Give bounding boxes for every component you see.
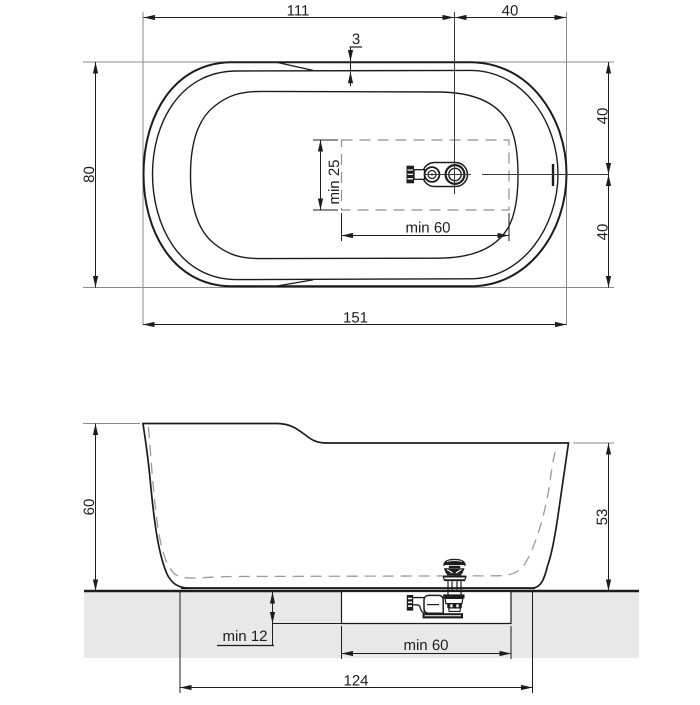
svg-text:40: 40	[595, 224, 612, 241]
svg-text:111: 111	[287, 2, 310, 19]
svg-text:min 12: min 12	[222, 628, 267, 645]
svg-text:40: 40	[595, 108, 612, 125]
svg-text:40: 40	[502, 2, 519, 19]
svg-text:3: 3	[352, 31, 360, 48]
svg-text:124: 124	[343, 672, 368, 689]
svg-text:min 60: min 60	[403, 637, 448, 654]
svg-text:151: 151	[343, 309, 368, 326]
svg-text:min 25: min 25	[326, 159, 343, 204]
svg-text:53: 53	[594, 509, 611, 526]
svg-text:min 60: min 60	[405, 219, 450, 236]
svg-text:80: 80	[81, 166, 98, 183]
svg-text:60: 60	[81, 499, 98, 516]
